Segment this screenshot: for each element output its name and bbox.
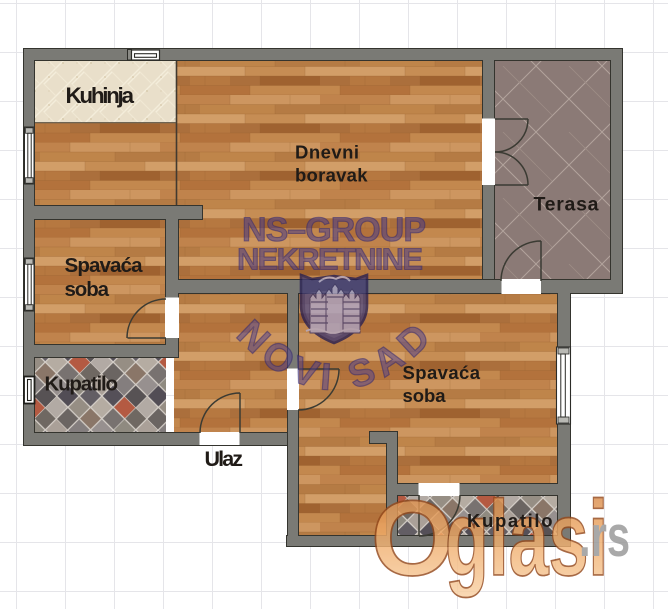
svg-text:Terasa: Terasa [534,194,599,216]
svg-text:Dnevni: Dnevni [295,142,359,163]
svg-text:NEKRETNINE: NEKRETNINE [237,242,423,277]
svg-text:Kupatilo: Kupatilo [45,373,119,396]
svg-text:boravak: boravak [295,165,368,186]
svg-text:soba: soba [403,385,447,406]
svg-text:Spavaća: Spavaća [403,362,481,383]
svg-text:Kuhinja: Kuhinja [66,83,135,108]
svg-text:Spavaća: Spavaća [65,254,144,277]
svg-text:soba: soba [65,278,110,301]
svg-text:.rs: .rs [579,503,630,568]
svg-text:Ulaz: Ulaz [205,447,244,471]
svg-text:O: O [371,478,454,598]
